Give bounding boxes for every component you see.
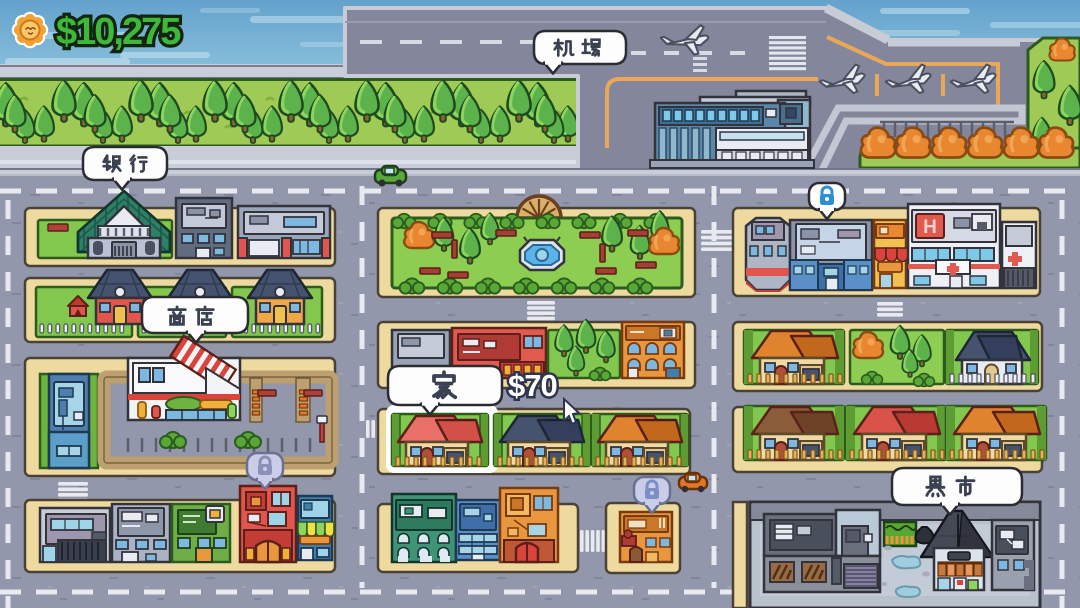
svg-text:H: H <box>923 217 937 238</box>
svg-text:$10,275: $10,275 <box>56 11 181 53</box>
svg-text:$70: $70 <box>508 368 557 403</box>
